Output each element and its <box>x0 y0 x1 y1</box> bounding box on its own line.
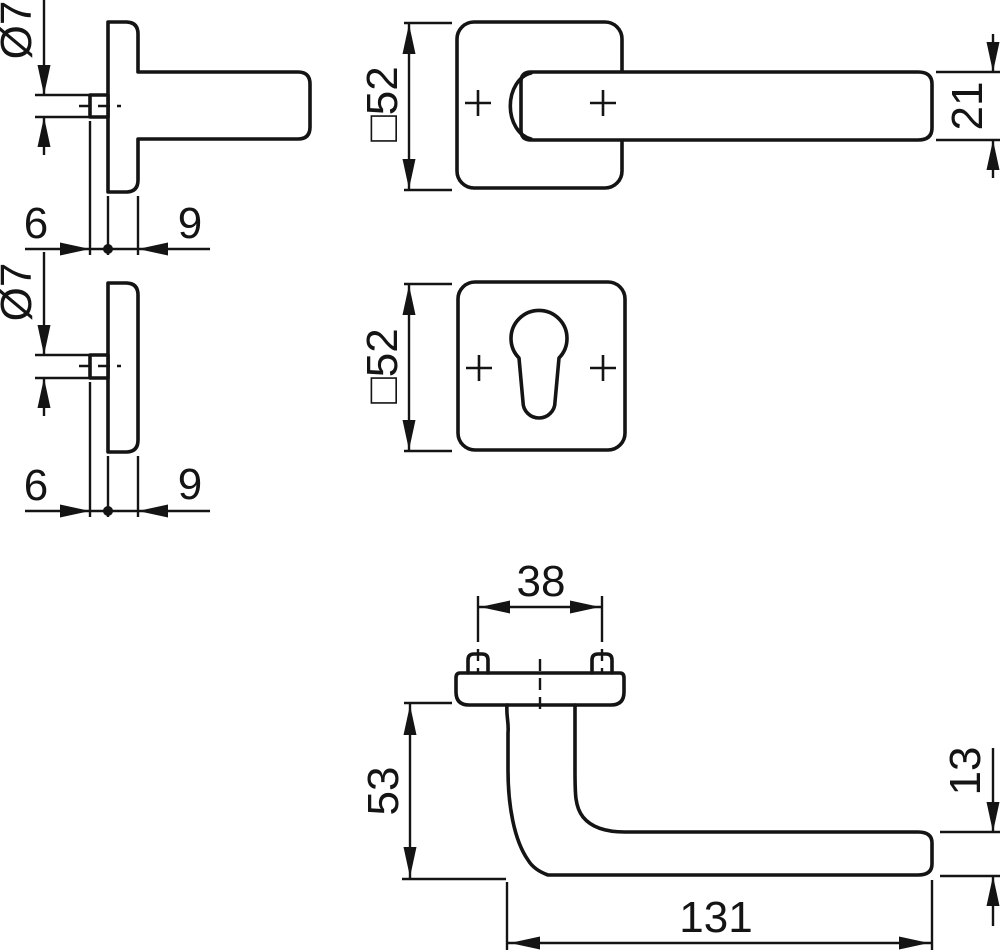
arrowhead <box>403 420 416 450</box>
arrowhead <box>403 285 416 315</box>
technical-drawing-page: Ø7 6 9 <box>0 0 1000 952</box>
dim-label-rose-size: □52 <box>358 66 407 142</box>
arrowhead <box>138 505 168 518</box>
arrowhead <box>987 876 1000 906</box>
dimension-dot <box>103 506 113 516</box>
dim-label-hub-projection: 6 <box>24 461 48 510</box>
view-key-rose-side: Ø7 6 9 <box>0 252 210 518</box>
dim-label-lever-length: 131 <box>679 893 752 942</box>
technical-drawing-canvas: Ø7 6 9 <box>0 0 1000 952</box>
dim-grip-thickness: 13 <box>940 747 1000 926</box>
arrowhead <box>480 601 510 614</box>
dim-lever-length: 131 <box>507 880 932 950</box>
arrowhead <box>38 65 51 95</box>
arrowhead <box>987 42 1000 72</box>
arrowhead <box>570 601 600 614</box>
dim-spindle-dia: Ø7 <box>0 0 89 155</box>
view-lever-rose-front: □52 21 <box>358 22 1000 190</box>
dim-lever-width: 21 <box>936 34 1000 178</box>
dim-label-rose-thickness: 9 <box>178 460 202 509</box>
lever-profile-silhouette <box>507 705 932 875</box>
dim-label-grip-thickness: 13 <box>941 747 990 796</box>
view-key-rose-front: □52 <box>358 282 625 451</box>
dim-label-rose-size: □52 <box>358 328 407 404</box>
dim-projection: 53 <box>359 703 506 879</box>
dim-label-spindle-dia: Ø7 <box>0 1 41 60</box>
dim-rose-size: □52 <box>358 284 452 451</box>
dim-label-lever-width: 21 <box>943 82 992 131</box>
dimension-dot <box>103 244 113 254</box>
arrowhead <box>60 505 90 518</box>
arrowhead <box>404 847 417 877</box>
arrowhead <box>510 937 540 950</box>
arrowhead <box>38 378 51 408</box>
view-lever-rose-side: Ø7 6 9 <box>0 0 310 256</box>
key-rose-side-silhouette <box>108 283 138 452</box>
arrowhead <box>138 243 168 256</box>
dim-spindle-dia: Ø7 <box>0 252 89 416</box>
dim-label-projection: 53 <box>359 767 408 816</box>
dim-label-spindle-dia: Ø7 <box>0 263 41 322</box>
lever-grip-front <box>521 72 932 140</box>
arrowhead <box>987 802 1000 832</box>
arrowhead <box>404 705 417 735</box>
arrowhead <box>38 117 51 147</box>
dim-screw-spacing: 38 <box>478 557 602 614</box>
arrowhead <box>60 243 90 256</box>
arrowhead <box>403 24 416 54</box>
dim-label-rose-thickness: 9 <box>178 199 202 248</box>
dim-rose-size: □52 <box>358 23 452 190</box>
dim-label-hub-projection: 6 <box>24 199 48 248</box>
arrowhead <box>987 140 1000 170</box>
view-lever-profile: 38 53 13 131 <box>359 557 1000 950</box>
arrowhead <box>899 937 929 950</box>
lever-rose-side-silhouette <box>108 22 310 192</box>
arrowhead <box>403 159 416 189</box>
arrowhead <box>38 325 51 355</box>
dim-label-screw-spacing: 38 <box>517 557 566 606</box>
